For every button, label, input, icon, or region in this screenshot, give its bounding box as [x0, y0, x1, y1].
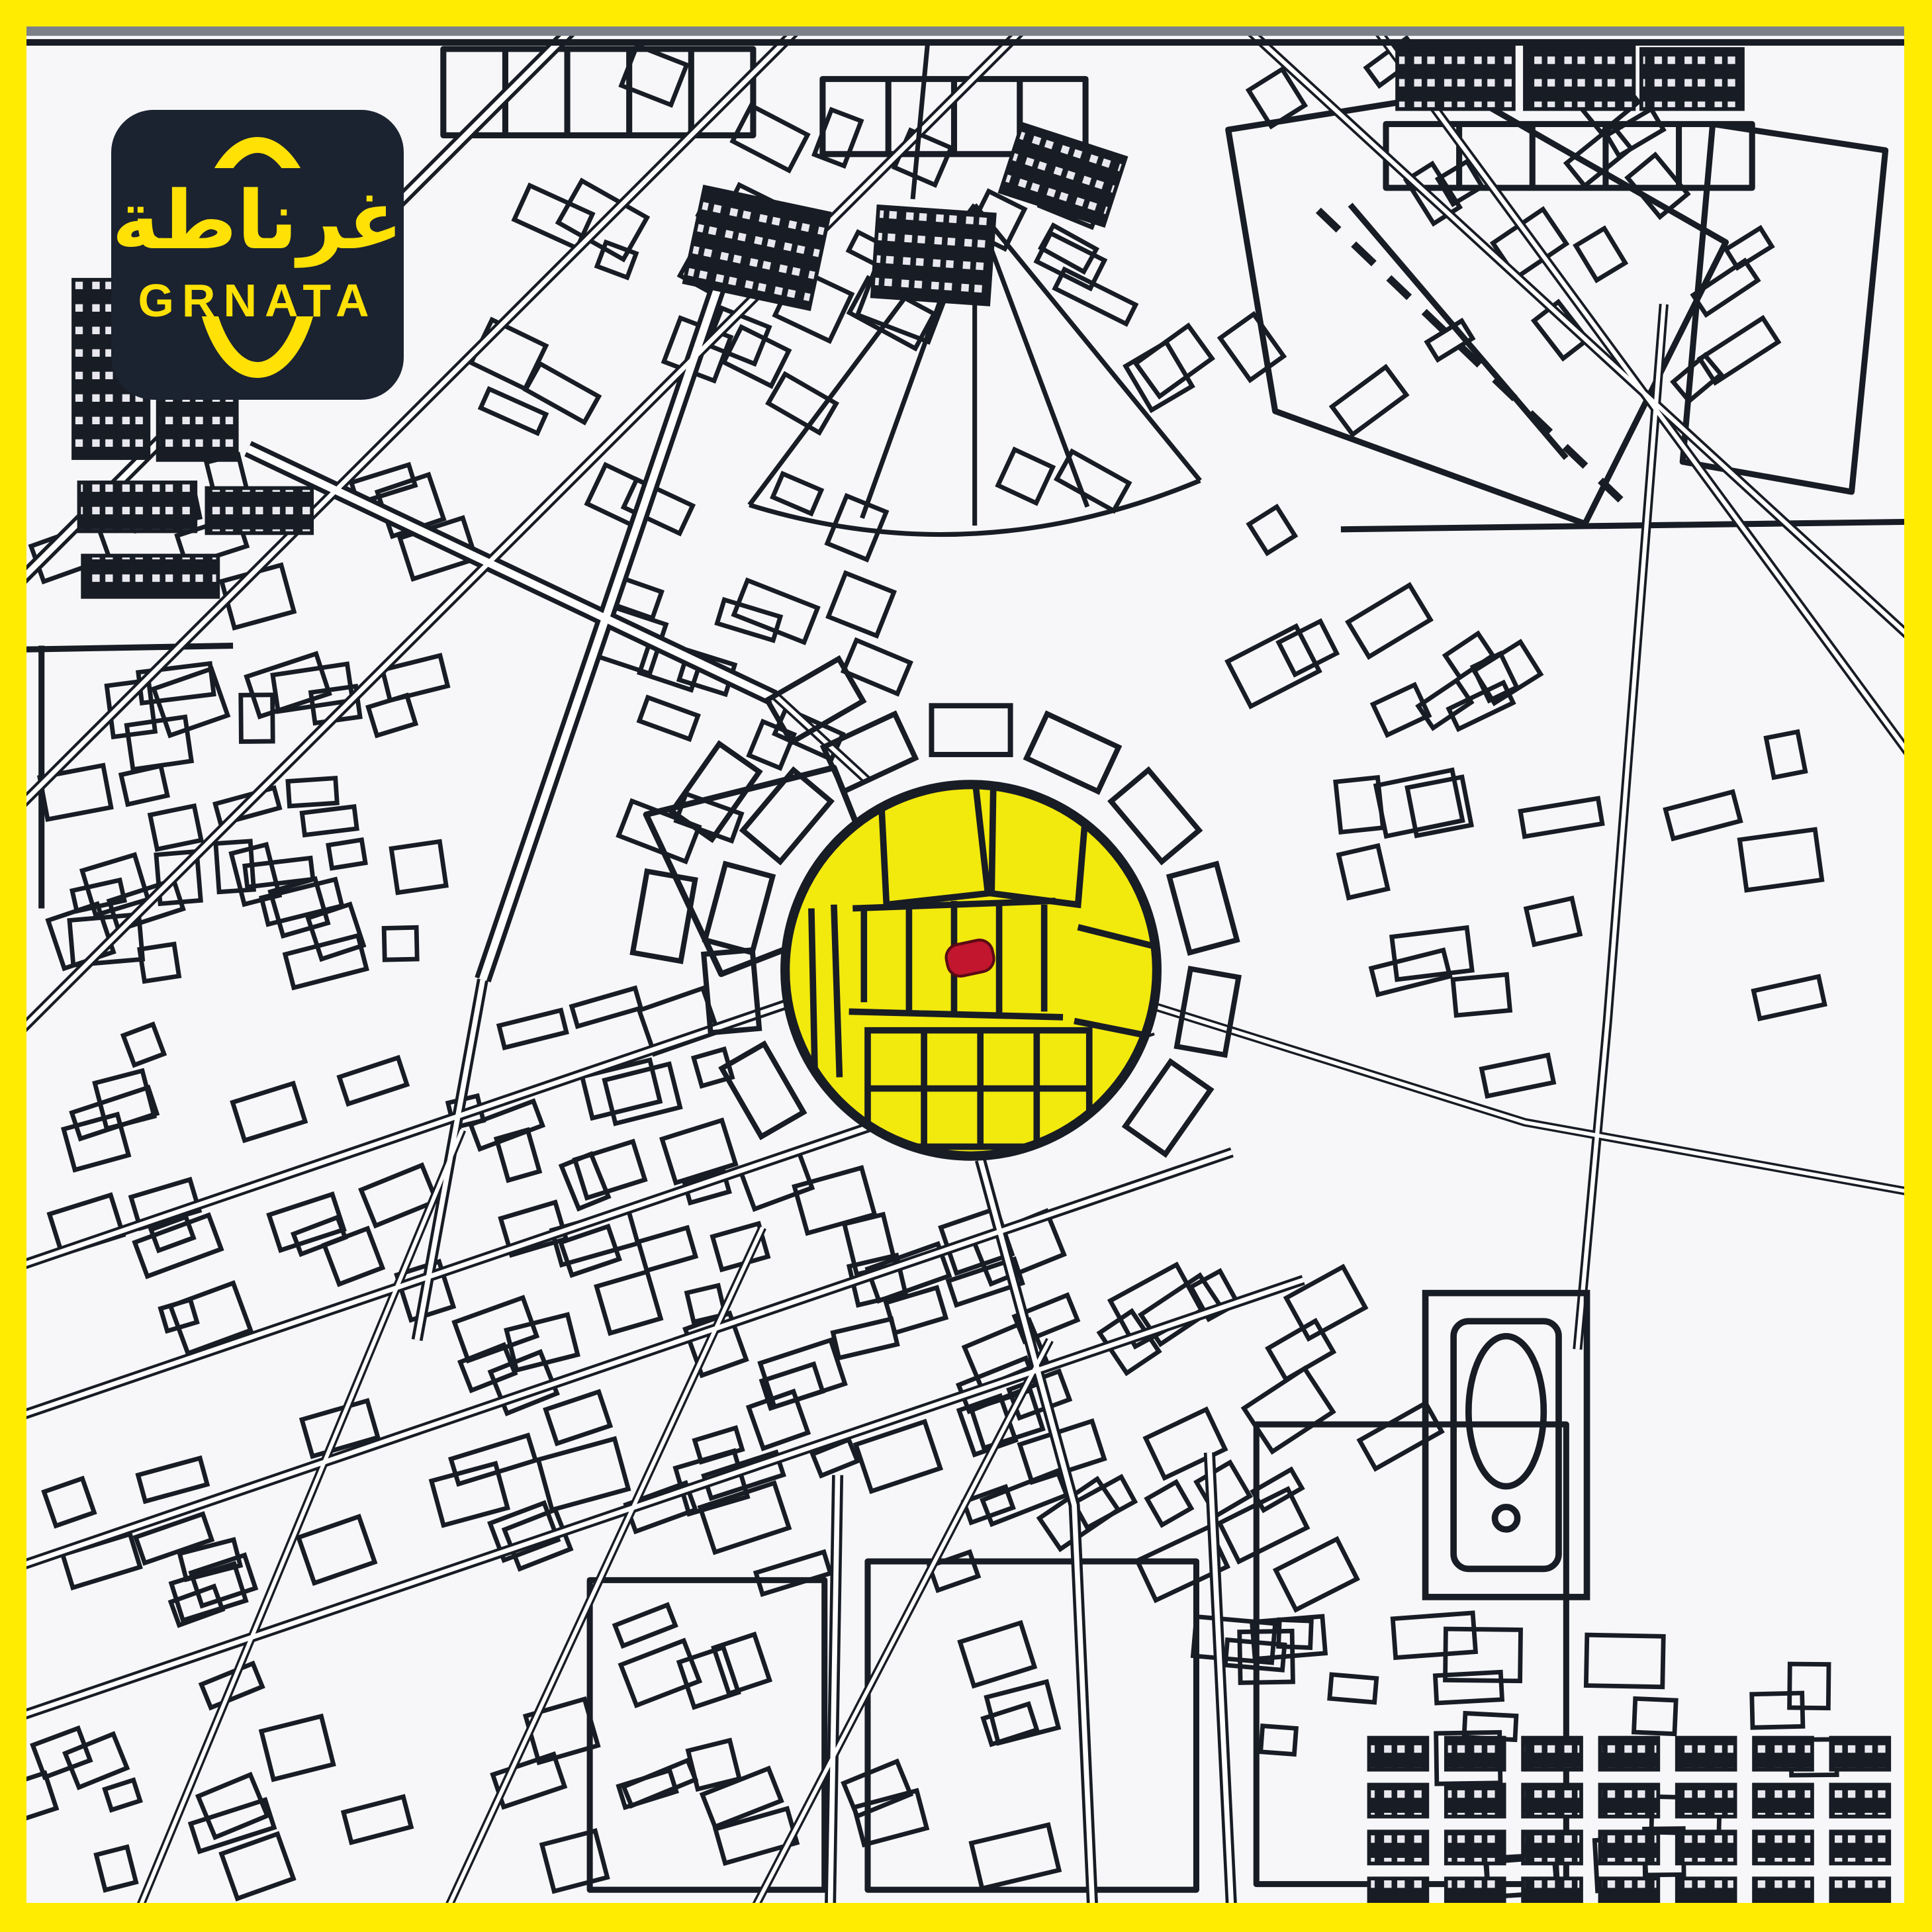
social-map-post: غرناطة GRNATA [0, 0, 1932, 1932]
logo-arabic-wordmark: غرناطة [111, 171, 404, 270]
scan-edge [26, 26, 1904, 36]
logo-latin-wordmark: GRNATA [111, 274, 404, 327]
grnata-logo: غرناطة GRNATA [111, 110, 404, 400]
